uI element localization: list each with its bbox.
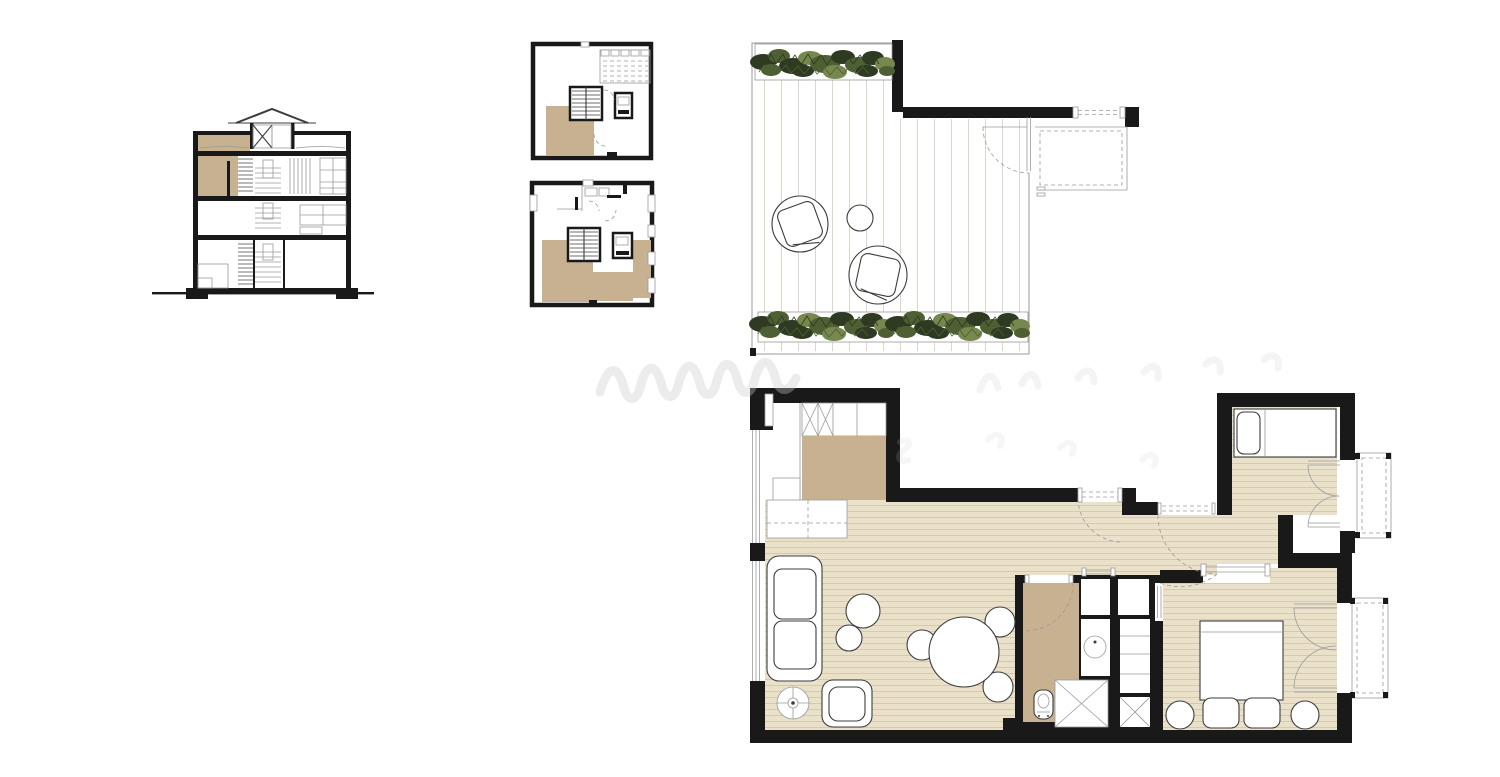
single-bed	[1234, 409, 1336, 457]
hallway-floor	[900, 502, 1136, 575]
shower	[1055, 680, 1108, 727]
planter-top	[750, 44, 895, 80]
section-walls	[193, 131, 351, 292]
floor-slab	[193, 196, 351, 201]
lounge-chair-2	[849, 246, 907, 304]
closet-2	[1118, 579, 1149, 615]
shelf-column	[1120, 619, 1150, 693]
balcony-railing	[1035, 127, 1127, 196]
bed-outline	[198, 264, 228, 288]
stair-treads	[255, 168, 281, 193]
third-level	[255, 203, 346, 234]
window-jamb	[1073, 107, 1078, 118]
window	[581, 42, 589, 47]
pillow	[1237, 412, 1260, 454]
shaft	[765, 394, 773, 426]
sofa	[767, 556, 822, 681]
washbasin	[1081, 619, 1110, 676]
pillow	[1244, 698, 1280, 728]
floor-slab	[193, 151, 351, 156]
terrace-walls	[892, 40, 1139, 127]
stair-core	[570, 87, 602, 120]
wardrobe-lines	[290, 158, 310, 194]
armchair	[822, 680, 872, 727]
highlighted-upper-room	[198, 156, 238, 196]
wall-stub	[589, 300, 597, 306]
highlighted-attic-room	[198, 135, 250, 151]
planter-bottom	[749, 311, 1030, 342]
building-section	[150, 106, 400, 308]
apartment-floor-plan	[748, 386, 1392, 748]
kitchen-counter	[802, 436, 886, 500]
closet-1	[1081, 579, 1110, 615]
second-level	[198, 156, 346, 196]
window-jamb	[1120, 107, 1125, 118]
key-plan-lower-floor	[527, 179, 659, 310]
appliance	[773, 478, 800, 501]
pillow	[1203, 698, 1239, 728]
attic-level	[198, 135, 345, 151]
kitchen-cabinets	[802, 403, 886, 436]
stair-rail-panel	[263, 160, 273, 178]
key-plan-upper-floor	[527, 42, 659, 170]
bathroom-block	[1015, 568, 1163, 730]
page-root: { "document": { "sheet_type": "architect…	[0, 0, 1500, 777]
roof-terrace-plan	[748, 38, 1140, 362]
balcony-small	[1355, 453, 1391, 538]
floor-lamp	[777, 687, 809, 719]
stair-core	[568, 228, 600, 261]
elevator	[613, 233, 632, 258]
ground-level	[198, 240, 285, 288]
fixture	[585, 188, 597, 196]
floor-slab	[193, 235, 351, 240]
balcony-main	[1350, 598, 1388, 698]
wall-stub	[607, 152, 617, 158]
highlighted-unit-area	[593, 272, 633, 301]
drawing-sheet	[0, 0, 1500, 777]
void	[1293, 515, 1337, 553]
lounge-chair-1	[772, 196, 828, 252]
fixture	[599, 188, 609, 196]
elevator	[615, 93, 632, 118]
toilet	[1034, 690, 1053, 719]
side-table	[847, 205, 873, 231]
desk	[767, 500, 847, 538]
washing-machine	[1120, 697, 1150, 727]
dining-table	[929, 617, 999, 687]
